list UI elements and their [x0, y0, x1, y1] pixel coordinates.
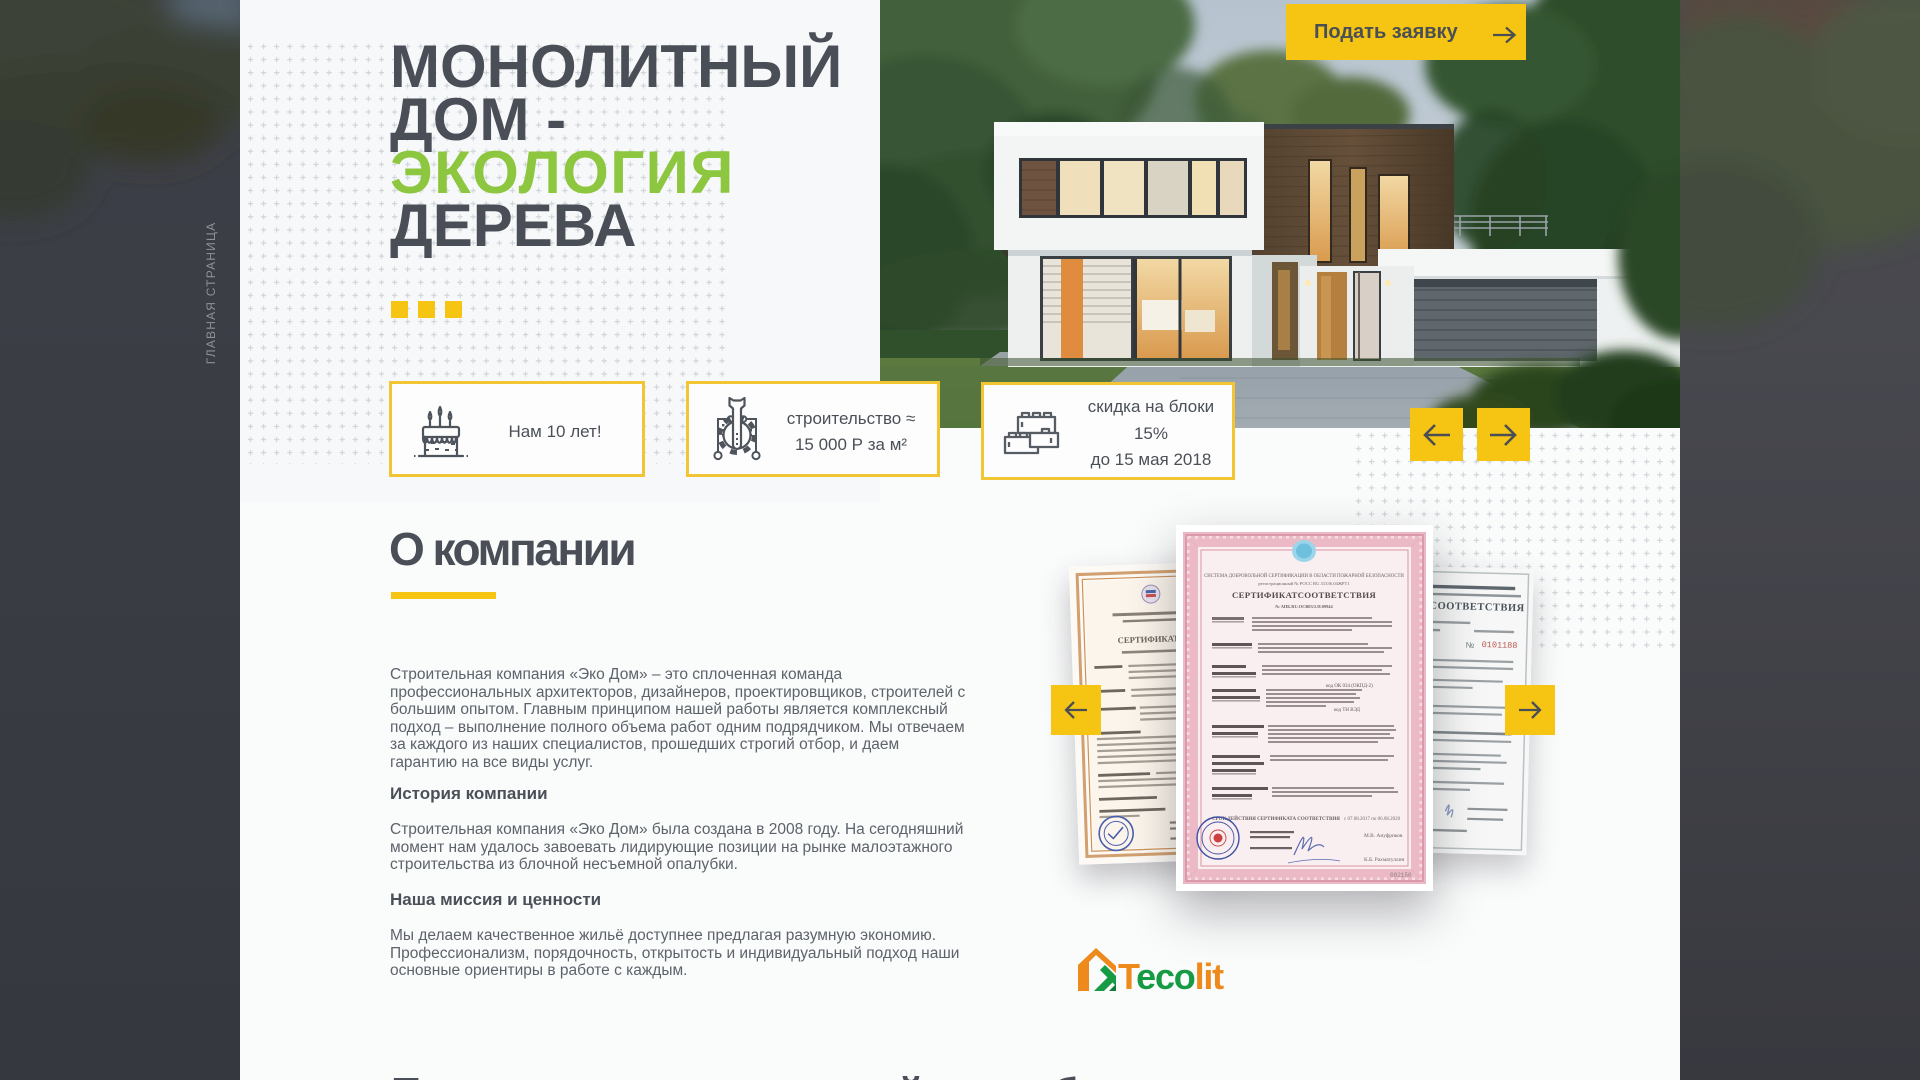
svg-text:0101188: 0101188: [1482, 640, 1518, 651]
svg-text:М.В. Ануфриков: М.В. Ануфриков: [1364, 832, 1403, 839]
svg-text:код ОК 034 (ОКПД-2): код ОК 034 (ОКПД-2): [1326, 684, 1373, 689]
svg-text:СИСТЕМА ДОБРОВОЛЬНОЙ СЕРТИФИКА: СИСТЕМА ДОБРОВОЛЬНОЙ СЕРТИФИКАЦИИ В ОБЛА…: [1204, 573, 1404, 579]
svg-text:002150: 002150: [1390, 872, 1412, 879]
svg-text:код ТН ВЭД: код ТН ВЭД: [1334, 708, 1360, 713]
svg-text:с 07.08.2017 по 06.08.2020: с 07.08.2017 по 06.08.2020: [1344, 817, 1401, 822]
svg-text:Tecolit: Tecolit: [1118, 956, 1224, 995]
svg-text:№: №: [1466, 641, 1475, 650]
svg-text:СЕРТИФИКАТСООТВЕТСТВИЯ: СЕРТИФИКАТСООТВЕТСТВИЯ: [1232, 590, 1376, 600]
svg-text:регистрационный № РОСС RU.3133: регистрационный № РОСС RU.31336.04ЖРТ1: [1258, 581, 1350, 586]
svg-text:К.Б. Рахматуллин: К.Б. Рахматуллин: [1364, 857, 1404, 863]
svg-text:№ АПБ.RU.ОСВ03/2.Н.09944: № АПБ.RU.ОСВ03/2.Н.09944: [1275, 604, 1333, 609]
